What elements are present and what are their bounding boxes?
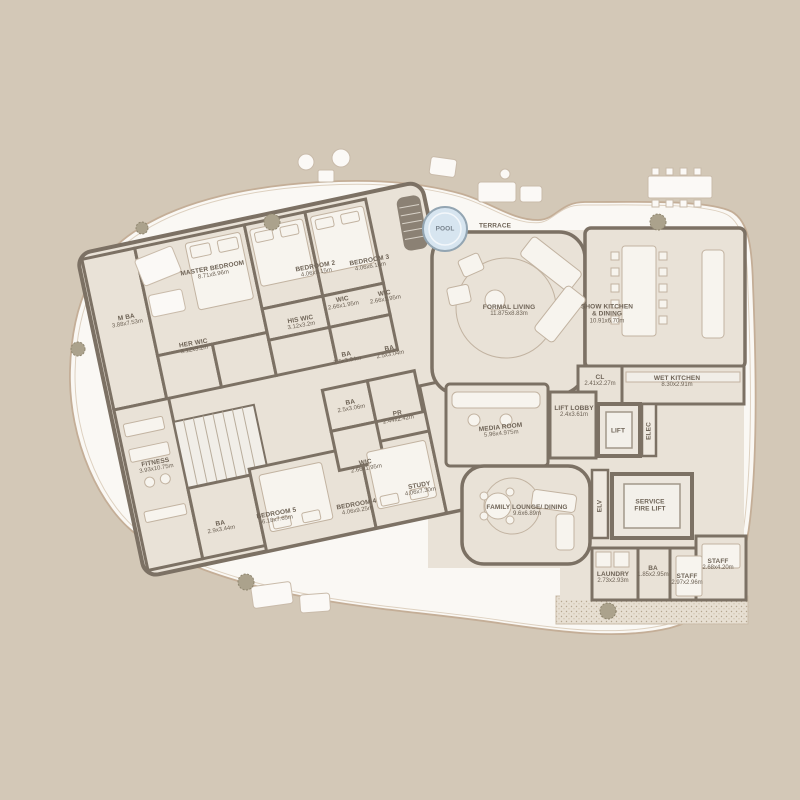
pool-icon xyxy=(423,207,467,251)
room-elv xyxy=(592,470,608,538)
floor-plan-canvas xyxy=(0,0,800,800)
lift-car-icon xyxy=(606,412,632,448)
room-his-wic xyxy=(212,332,276,387)
room-ba-staff xyxy=(638,548,670,600)
room-pr xyxy=(367,371,423,422)
room-elec xyxy=(642,404,656,456)
room-her-wic xyxy=(158,344,222,399)
service-lift-car-icon xyxy=(624,484,680,528)
room-lift-lobby xyxy=(550,392,596,458)
floor-plan-page: MASTER BEDROOM8.71x8.96m M BA3.88x7.53m … xyxy=(0,0,800,800)
